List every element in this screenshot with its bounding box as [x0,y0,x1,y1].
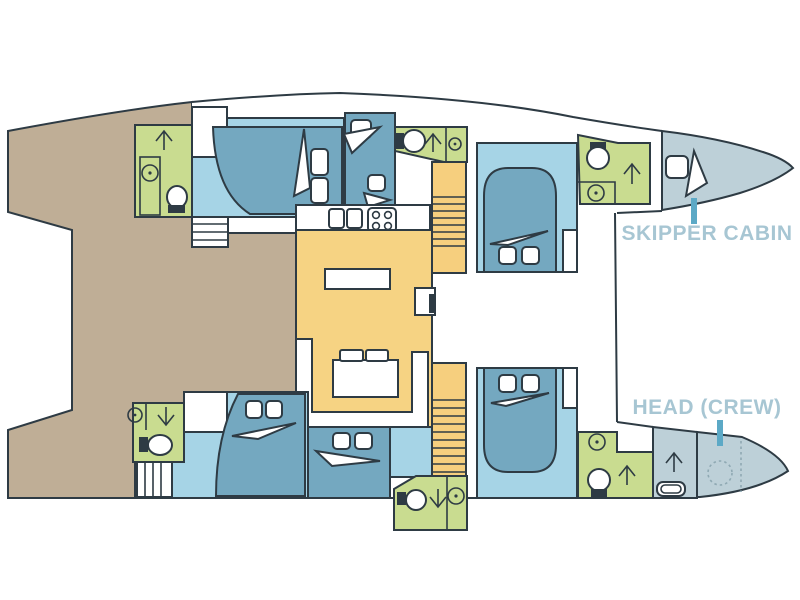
pillow [499,247,516,264]
coffee-table [333,360,398,397]
sink-basin [329,209,344,228]
pillow [333,433,350,449]
seat-cushion [340,350,363,361]
forward-stairs-bottom [432,363,466,477]
toilet-icon [167,186,187,208]
toilet-icon [403,130,425,152]
toilet-icon [148,435,172,455]
starboard-aft-cabin-entry [184,392,227,432]
pillow [499,375,516,392]
hatch [429,294,435,313]
forward-cabin-top-bed [484,168,556,272]
stove-icon [368,208,396,232]
toilet-icon [588,469,610,491]
toilet-tank [397,492,406,505]
washbasin-drain [595,440,598,443]
starboard-companionway-stairs [137,462,172,497]
salon-table [325,269,390,289]
toilet-tank [139,437,148,452]
washbasin-drain [454,494,457,497]
deck-plan-canvas: SKIPPER CABIN HEAD (CREW) [0,0,800,600]
sink-basin [347,209,362,228]
pillow [266,401,282,418]
cabin-door-bottom [563,368,577,408]
toilet-icon [587,147,609,169]
washbasin-drain [134,414,137,417]
pillow [666,156,688,178]
pillow [355,433,372,449]
starboard-mid-cabin-floor [390,427,432,477]
skipper-cabin-pointer [691,198,697,224]
washbasin-drain [594,191,597,194]
seat-cushion [366,350,388,361]
head-crew-pointer [717,420,723,446]
washbasin-drain [148,171,151,174]
pillow [368,175,385,191]
forward-cabin-bottom-bed [484,368,556,472]
washbasin-drain [454,143,457,146]
cabin-door-top [563,230,577,272]
toilet-tank [168,205,185,213]
pillow [246,401,262,418]
pillow [522,375,539,392]
pillow [522,247,539,264]
head-crew-label: HEAD (CREW) [633,396,782,419]
pillow [311,178,328,203]
toilet-tank [591,489,607,497]
skipper-cabin-label: SKIPPER CABIN [621,222,792,245]
toilet-icon [406,490,426,510]
pillow [311,149,328,175]
catamaran-deck-plan: SKIPPER CABIN HEAD (CREW) [0,0,800,600]
